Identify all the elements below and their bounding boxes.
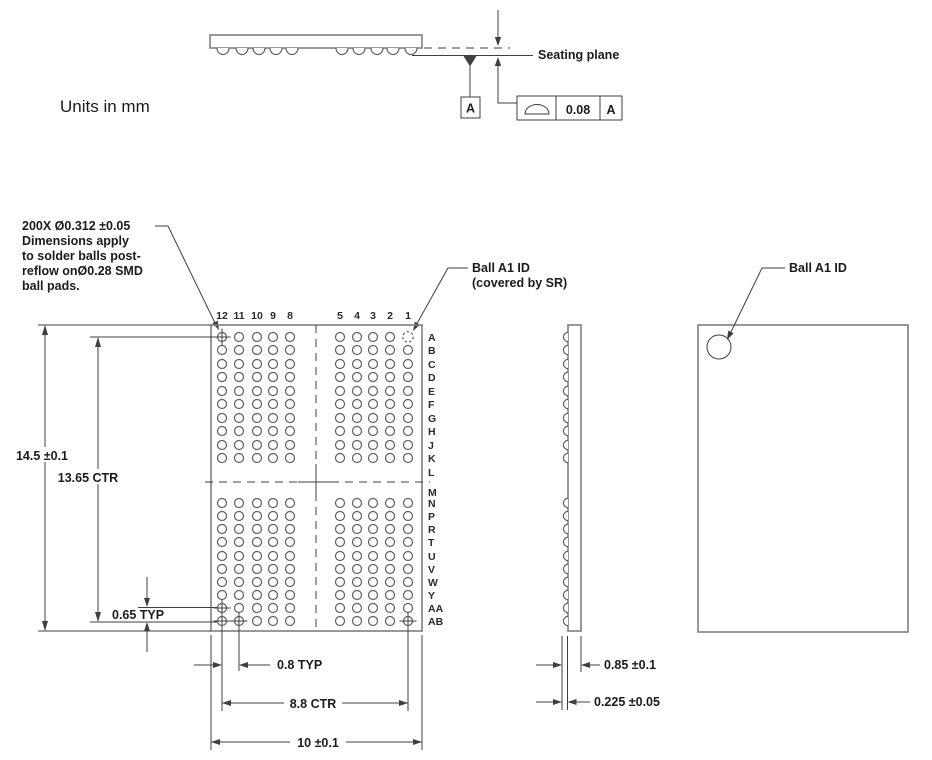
solder-ball [353, 617, 362, 626]
solder-ball [404, 525, 413, 534]
solder-ball [253, 427, 262, 436]
solder-ball [353, 454, 362, 463]
ball-bump [563, 332, 568, 341]
solder-ball [404, 578, 413, 587]
solder-ball [269, 552, 278, 561]
solder-ball [336, 512, 345, 521]
solder-ball [336, 414, 345, 423]
solder-ball [235, 346, 244, 355]
solder-ball [235, 373, 244, 382]
solder-ball [353, 538, 362, 547]
solder-ball [404, 400, 413, 409]
note-line-5: ball pads. [22, 279, 80, 293]
solder-ball [218, 591, 227, 600]
solder-ball [253, 333, 262, 342]
solder-ball [386, 512, 395, 521]
ball-bump [563, 399, 568, 408]
datum-triangle-icon [464, 56, 477, 67]
elevation-ball-row [217, 48, 417, 55]
solder-ball [253, 552, 262, 561]
solder-ball [353, 578, 362, 587]
ball-bump [371, 48, 383, 55]
solder-ball [286, 591, 295, 600]
solder-ball [218, 565, 227, 574]
row-label: L [428, 467, 435, 479]
ball-bump [270, 48, 282, 55]
solder-ball [386, 387, 395, 396]
note-line-3: to solder balls post- [22, 249, 141, 263]
row-label: V [428, 564, 435, 576]
solder-ball [286, 400, 295, 409]
feature-control-frame: 0.08 A [517, 96, 622, 120]
solder-ball [336, 565, 345, 574]
row-label: AB [428, 616, 444, 628]
fiducial-target [214, 613, 231, 630]
solder-ball [353, 565, 362, 574]
ball-a1-covered-callout: Ball A1 ID (covered by SR) [413, 261, 567, 331]
solder-ball [336, 333, 345, 342]
solder-ball [269, 512, 278, 521]
ball-bump [236, 48, 248, 55]
solder-ball [235, 454, 244, 463]
solder-ball [369, 538, 378, 547]
solder-ball [369, 346, 378, 355]
solder-ball [235, 441, 244, 450]
solder-ball [269, 565, 278, 574]
solder-ball [336, 578, 345, 587]
fcf-datum-ref: A [606, 103, 615, 117]
solder-ball [404, 441, 413, 450]
solder-ball [336, 427, 345, 436]
package-body-profile [210, 35, 422, 48]
ball-a1-leader-line [415, 268, 468, 327]
solder-ball [336, 604, 345, 613]
solder-ball [369, 591, 378, 600]
solder-ball [386, 525, 395, 534]
solder-ball [353, 427, 362, 436]
solder-ball [404, 565, 413, 574]
ball-bump [387, 48, 399, 55]
solder-ball [269, 414, 278, 423]
solder-ball [386, 333, 395, 342]
solder-ball [369, 617, 378, 626]
bga-package-drawing: A 0.08 A Seating plane Units in mm 200X … [0, 0, 932, 760]
ball-grid [218, 333, 413, 626]
solder-ball [253, 499, 262, 508]
solder-ball [269, 427, 278, 436]
solder-ball [386, 565, 395, 574]
solder-ball [369, 604, 378, 613]
solder-ball [286, 441, 295, 450]
solder-ball [218, 578, 227, 587]
arrow-left-icon [222, 700, 231, 706]
solder-ball [336, 387, 345, 396]
dim-row-span: 13.65 CTR [58, 471, 118, 485]
solder-ball [404, 604, 413, 613]
ball-bump [563, 551, 568, 560]
solder-ball [404, 454, 413, 463]
leader-arrow-icon [413, 322, 420, 331]
arrow-right-icon [553, 699, 562, 705]
ball-bump [563, 524, 568, 533]
solder-ball [253, 617, 262, 626]
solder-ball [253, 360, 262, 369]
solder-ball [386, 414, 395, 423]
solder-ball [404, 499, 413, 508]
side-profile-view: 0.85 ±0.1 0.225 ±0.05 [536, 325, 660, 710]
solder-ball [286, 454, 295, 463]
solder-ball [269, 538, 278, 547]
coplanarity-symbol-icon [525, 105, 549, 115]
row-label: B [428, 345, 436, 357]
solder-ball [235, 591, 244, 600]
solder-ball [218, 427, 227, 436]
solder-ball [353, 400, 362, 409]
solder-ball [386, 552, 395, 561]
arrow-down-icon [144, 598, 150, 607]
col-label: 1 [405, 310, 411, 322]
solder-ball [253, 591, 262, 600]
solder-ball [269, 373, 278, 382]
solder-ball [336, 591, 345, 600]
row-label: T [428, 537, 435, 549]
solder-ball [336, 346, 345, 355]
col-label: 4 [354, 310, 360, 322]
ball-bump [563, 426, 568, 435]
solder-ball [286, 414, 295, 423]
row-label: R [428, 524, 436, 536]
arrow-left-icon [211, 739, 220, 745]
solder-ball [286, 360, 295, 369]
leader-arrow-icon [727, 331, 734, 340]
col-label: 5 [337, 310, 343, 322]
solder-ball [404, 538, 413, 547]
row-label: H [428, 426, 436, 438]
solder-ball [386, 360, 395, 369]
solder-ball [218, 525, 227, 534]
solder-ball [218, 454, 227, 463]
solder-ball [369, 360, 378, 369]
solder-ball [404, 427, 413, 436]
row-label: Y [428, 590, 435, 602]
solder-ball [253, 512, 262, 521]
solder-ball [369, 512, 378, 521]
solder-ball [404, 591, 413, 600]
solder-ball [336, 441, 345, 450]
ball-bump [563, 564, 568, 573]
solder-ball [404, 387, 413, 396]
col-label: 12 [216, 310, 228, 322]
solder-ball [269, 400, 278, 409]
solder-ball [369, 373, 378, 382]
note-line-4: reflow onØ0.28 SMD [22, 264, 143, 278]
note-leader-line [155, 226, 216, 325]
solder-ball [218, 387, 227, 396]
solder-ball [253, 525, 262, 534]
col-label: 10 [251, 310, 263, 322]
solder-ball [386, 499, 395, 508]
solder-ball [369, 333, 378, 342]
solder-ball [235, 604, 244, 613]
ball-bump [563, 453, 568, 462]
solder-ball [286, 538, 295, 547]
arrow-left-icon [581, 662, 590, 668]
solder-ball [386, 604, 395, 613]
solder-ball [286, 552, 295, 561]
ball-bump [353, 48, 365, 55]
solder-ball [269, 387, 278, 396]
col-label: 8 [287, 310, 293, 322]
arrow-right-icon [399, 700, 408, 706]
solder-ball [235, 578, 244, 587]
package-top-outline [698, 325, 908, 632]
covered-ball-a1 [403, 332, 413, 342]
solder-ball [235, 512, 244, 521]
solder-ball [404, 414, 413, 423]
ball-bump [286, 48, 298, 55]
solder-ball [269, 346, 278, 355]
solder-ball [336, 454, 345, 463]
solder-ball [404, 360, 413, 369]
solder-ball [286, 499, 295, 508]
solder-ball [218, 346, 227, 355]
solder-ball [336, 525, 345, 534]
solder-ball [269, 591, 278, 600]
ball-bump [563, 372, 568, 381]
solder-ball [286, 373, 295, 382]
solder-ball [404, 512, 413, 521]
solder-ball [218, 400, 227, 409]
solder-ball [353, 552, 362, 561]
solder-ball [286, 604, 295, 613]
row-label: A [428, 332, 436, 344]
solder-ball [386, 578, 395, 587]
solder-ball [369, 578, 378, 587]
solder-ball [353, 525, 362, 534]
dim-body-height: 14.5 ±0.1 [16, 449, 68, 463]
solder-ball [218, 414, 227, 423]
datum-label: A [466, 102, 475, 116]
solder-ball [286, 525, 295, 534]
solder-ball [235, 387, 244, 396]
solder-ball [336, 499, 345, 508]
ball-bump [563, 616, 568, 625]
row-label: N [428, 498, 436, 510]
units-note: Units in mm [60, 97, 150, 116]
solder-ball [253, 565, 262, 574]
solder-ball [269, 360, 278, 369]
ball-bump [563, 413, 568, 422]
solder-ball [336, 538, 345, 547]
solder-ball [269, 441, 278, 450]
row-label: E [428, 386, 435, 398]
ball-a1-covered-label-2: (covered by SR) [472, 276, 567, 290]
solder-ball [353, 387, 362, 396]
solder-ball [218, 538, 227, 547]
arrow-right-icon [213, 662, 222, 668]
ball-a1-top-label: Ball A1 ID [789, 261, 847, 275]
solder-ball [336, 360, 345, 369]
solder-ball [235, 360, 244, 369]
solder-ball [269, 333, 278, 342]
solder-ball [253, 454, 262, 463]
arrow-left-icon [239, 662, 248, 668]
arrow-up-icon [495, 57, 501, 66]
arrow-down-icon [495, 37, 501, 46]
solder-ball [286, 512, 295, 521]
solder-ball [353, 373, 362, 382]
solder-ball [235, 538, 244, 547]
solder-ball [235, 427, 244, 436]
solder-ball [353, 499, 362, 508]
ball-bump [217, 48, 229, 55]
solder-ball [369, 427, 378, 436]
solder-ball [386, 441, 395, 450]
solder-ball [386, 591, 395, 600]
dim-col-span: 8.8 CTR [290, 697, 337, 711]
dim-standoff: 0.225 ±0.05 [594, 695, 660, 709]
solder-ball [353, 346, 362, 355]
solder-ball [269, 499, 278, 508]
solder-ball [369, 400, 378, 409]
arrow-up-icon [144, 622, 150, 631]
ball-bump [563, 440, 568, 449]
solder-ball [253, 604, 262, 613]
solder-ball [235, 565, 244, 574]
solder-ball [353, 333, 362, 342]
solder-ball [286, 565, 295, 574]
solder-ball [286, 387, 295, 396]
solder-ball [253, 387, 262, 396]
dim-col-pitch: 0.8 TYP [277, 658, 322, 672]
solder-ball [336, 373, 345, 382]
solder-ball [353, 591, 362, 600]
solder-ball [386, 400, 395, 409]
solder-ball [369, 552, 378, 561]
solder-ball [235, 525, 244, 534]
dim-thickness: 0.85 ±0.1 [604, 658, 656, 672]
solder-ball [386, 346, 395, 355]
fcf-tolerance-value: 0.08 [566, 103, 590, 117]
solder-ball [269, 454, 278, 463]
solder-ball [286, 578, 295, 587]
solder-ball [286, 346, 295, 355]
ball-bump [563, 603, 568, 612]
solder-ball [269, 525, 278, 534]
solder-ball [404, 373, 413, 382]
solder-ball [353, 604, 362, 613]
note-line-1: 200X Ø0.312 ±0.05 [22, 219, 130, 233]
arrow-right-icon [553, 662, 562, 668]
solder-ball [369, 454, 378, 463]
solder-ball [369, 441, 378, 450]
side-elevation-view: A 0.08 A Seating plane [210, 10, 622, 120]
solder-ball [353, 360, 362, 369]
arrow-down-icon [42, 621, 48, 631]
solder-ball [269, 604, 278, 613]
package-side-profile [568, 325, 581, 631]
solder-ball [218, 512, 227, 521]
solder-ball [369, 499, 378, 508]
solder-ball [235, 333, 244, 342]
ball-bump [563, 359, 568, 368]
solder-ball [218, 441, 227, 450]
ball-bump [563, 386, 568, 395]
ball-bump [563, 498, 568, 507]
arrow-right-icon [413, 739, 422, 745]
solder-ball [253, 441, 262, 450]
solder-ball [286, 333, 295, 342]
solder-ball [386, 538, 395, 547]
solder-ball [269, 578, 278, 587]
solder-ball [235, 414, 244, 423]
col-label: 2 [387, 310, 393, 322]
note-line-2: Dimensions apply [22, 234, 129, 248]
solder-ball [218, 360, 227, 369]
ball-bump [563, 511, 568, 520]
dim-body-width: 10 ±0.1 [297, 736, 339, 750]
row-label: K [428, 453, 436, 465]
solder-ball [353, 512, 362, 521]
fiducial-target [214, 329, 231, 346]
row-label: C [428, 359, 436, 371]
solder-ball [269, 617, 278, 626]
solder-ball [218, 499, 227, 508]
solder-ball [253, 346, 262, 355]
solder-ball [253, 578, 262, 587]
solder-ball [386, 373, 395, 382]
row-label: AA [428, 603, 444, 615]
ball-bump [405, 48, 417, 55]
arrow-up-icon [42, 325, 48, 335]
fcf-leader-line [498, 66, 517, 103]
solder-ball [253, 538, 262, 547]
solder-ball [235, 552, 244, 561]
row-label: D [428, 372, 436, 384]
arrow-left-icon [568, 699, 577, 705]
row-label: G [428, 413, 436, 425]
dim-row-pitch: 0.65 TYP [112, 608, 164, 622]
row-label: W [428, 577, 438, 589]
row-label: P [428, 511, 435, 523]
solder-ball [218, 552, 227, 561]
solder-ball [386, 427, 395, 436]
ball-a1-covered-label-1: Ball A1 ID [472, 261, 530, 275]
top-view: Ball A1 ID [698, 261, 908, 632]
solder-ball [253, 373, 262, 382]
solder-ball [336, 552, 345, 561]
row-label: F [428, 399, 435, 411]
arrow-up-icon [95, 337, 101, 347]
solder-ball [404, 346, 413, 355]
row-label: U [428, 551, 436, 563]
ball-bump [253, 48, 265, 55]
fiducial-target [400, 613, 417, 630]
ball-bump [563, 345, 568, 354]
solder-ball [286, 427, 295, 436]
col-label: 11 [233, 310, 244, 322]
col-label: 3 [370, 310, 376, 322]
solder-ball [235, 499, 244, 508]
solder-ball [235, 400, 244, 409]
solder-ball [386, 617, 395, 626]
seating-plane-label: Seating plane [538, 48, 619, 62]
ball-bump [336, 48, 348, 55]
ball-bump [563, 577, 568, 586]
solder-ball [286, 617, 295, 626]
solder-ball-note: 200X Ø0.312 ±0.05 Dimensions apply to so… [22, 219, 219, 330]
solder-ball [404, 552, 413, 561]
